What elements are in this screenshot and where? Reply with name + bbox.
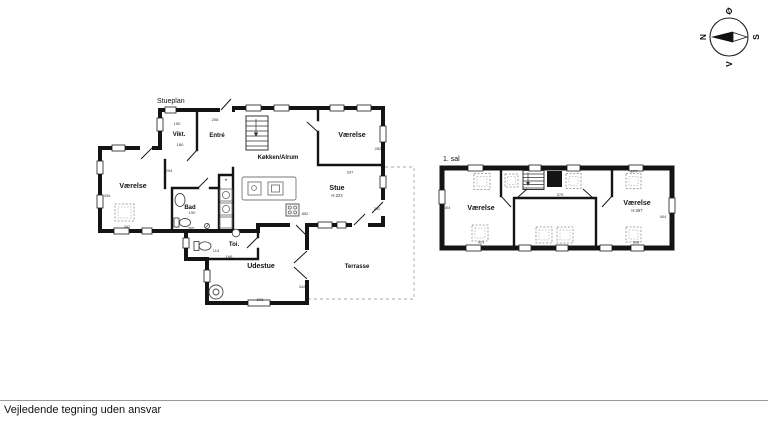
dim-vaerelse-left-door: 204 [166,168,173,173]
window [204,270,210,282]
room-label-terrasse: Terrasse [345,264,370,270]
window [165,107,176,113]
door-toi [247,237,258,248]
dim-first-right-top: 277 [631,169,638,174]
shaft-symbol: * [225,178,228,185]
window [157,118,163,131]
compass-label-north: N [698,34,708,40]
window [380,176,386,188]
terrace-outline [308,167,414,299]
dim-first-left-height: 404 [444,205,451,210]
cabinet-icon [220,217,232,228]
dim-vaerelse-left-height: 434 [104,193,111,198]
dim-stue-right: 292 [374,206,381,211]
window [318,222,332,228]
staircase-ground [246,116,268,150]
compass-label-west: V [724,61,734,67]
dim-vaerelse-top-right: 282 [375,146,382,151]
dim-first-right-height: 404 [660,214,667,219]
stove-icon [286,204,299,216]
window [330,105,344,111]
room-label-toi: Toi. [229,242,240,248]
dim-vikt-width: 150 [174,121,181,126]
door-bad [198,178,208,188]
room-label-vaerelse-top: Værelse [338,132,365,139]
room-label-vaerelse-left: Værelse [119,183,146,190]
window [357,105,371,111]
window [112,145,125,151]
staircase-first-floor [523,171,544,190]
room-height-vaerelse-right: H:267 [631,208,643,213]
dim-udestue-right: 342 [299,284,306,289]
window [380,126,386,142]
room-label-koekken: Køkken/Alrum [258,155,299,161]
window [246,105,261,111]
utility-shaft: * [220,178,232,228]
room-label-vaerelse-left-first: Værelse [467,205,494,212]
dim-bad-depth: 190 [189,210,196,215]
room-label-udestue: Udestue [247,263,275,270]
dim-vikt-depth: 180 [177,142,184,147]
door-vaerelse-top [307,122,318,132]
dim-stue-top: 337 [347,170,354,175]
outer-walls-main [100,108,383,231]
window [183,238,189,248]
window [631,245,644,251]
floor-plan-page: N S Ø V Stueplan [0,0,768,422]
door-middle-right [583,189,593,198]
door-middle-left [517,189,527,198]
door-right-room [602,196,612,207]
window [556,245,568,251]
dim-udestue-width: 508 [257,297,264,302]
toilet-icon [174,218,179,227]
dim-first-left-width: 423 [478,240,485,245]
toilet-icon [194,242,199,251]
door-gap-french-doors [304,250,310,280]
window [97,161,103,174]
dim-bad-width: 305 [188,226,195,231]
dim-vaerelse-left-width: 342 [124,224,131,229]
window [529,165,541,171]
disclaimer-text: Vejledende tegning uden ansvar [4,404,161,416]
footer-divider [0,400,768,401]
compass-needle-south [733,33,747,42]
compass-label-south: S [751,34,761,40]
door-vikt [187,150,197,161]
window [439,190,445,204]
floor-plan-drawing: N S Ø V Stueplan [0,0,768,422]
window [669,198,675,213]
dim-stue-stove: 852 [302,211,309,216]
window [600,245,612,251]
room-label-stue: Stue [329,185,344,192]
room-height-stue: H:223 [331,193,343,198]
skylight [115,204,134,221]
compass-needle-north [711,32,733,43]
window [142,228,152,234]
window [468,165,483,171]
first-floor-title: 1. sal [443,156,460,163]
ground-floor-plan: Stueplan [97,98,414,306]
window [337,222,346,228]
window [567,165,580,171]
first-floor-plan: 1. sal [439,156,675,251]
round-stove-icon [209,285,223,299]
room-label-vikt: Vikt. [173,132,186,138]
dim-first-right-width: 396 [633,240,640,245]
window [466,245,481,251]
compass-rose: N S Ø V [698,5,761,67]
window [519,245,531,251]
dim-toi-depth: 113 [213,248,220,253]
kitchen-island [242,177,296,200]
dim-toi-width: 166 [226,254,233,259]
room-label-vaerelse-right-first: Værelse [623,200,650,207]
room-label-entre: Entré [209,133,225,139]
window [97,195,103,208]
door-left-room [501,196,511,207]
wall-middle-room [514,198,596,246]
dim-entre-top: 208 [212,117,219,122]
sink-icon [232,229,240,237]
compass-label-east: Ø [723,5,735,17]
dim-first-middle-top: 379 [557,192,564,197]
window [274,105,289,111]
ground-floor-title: Stueplan [157,98,185,105]
chimney [547,171,562,187]
